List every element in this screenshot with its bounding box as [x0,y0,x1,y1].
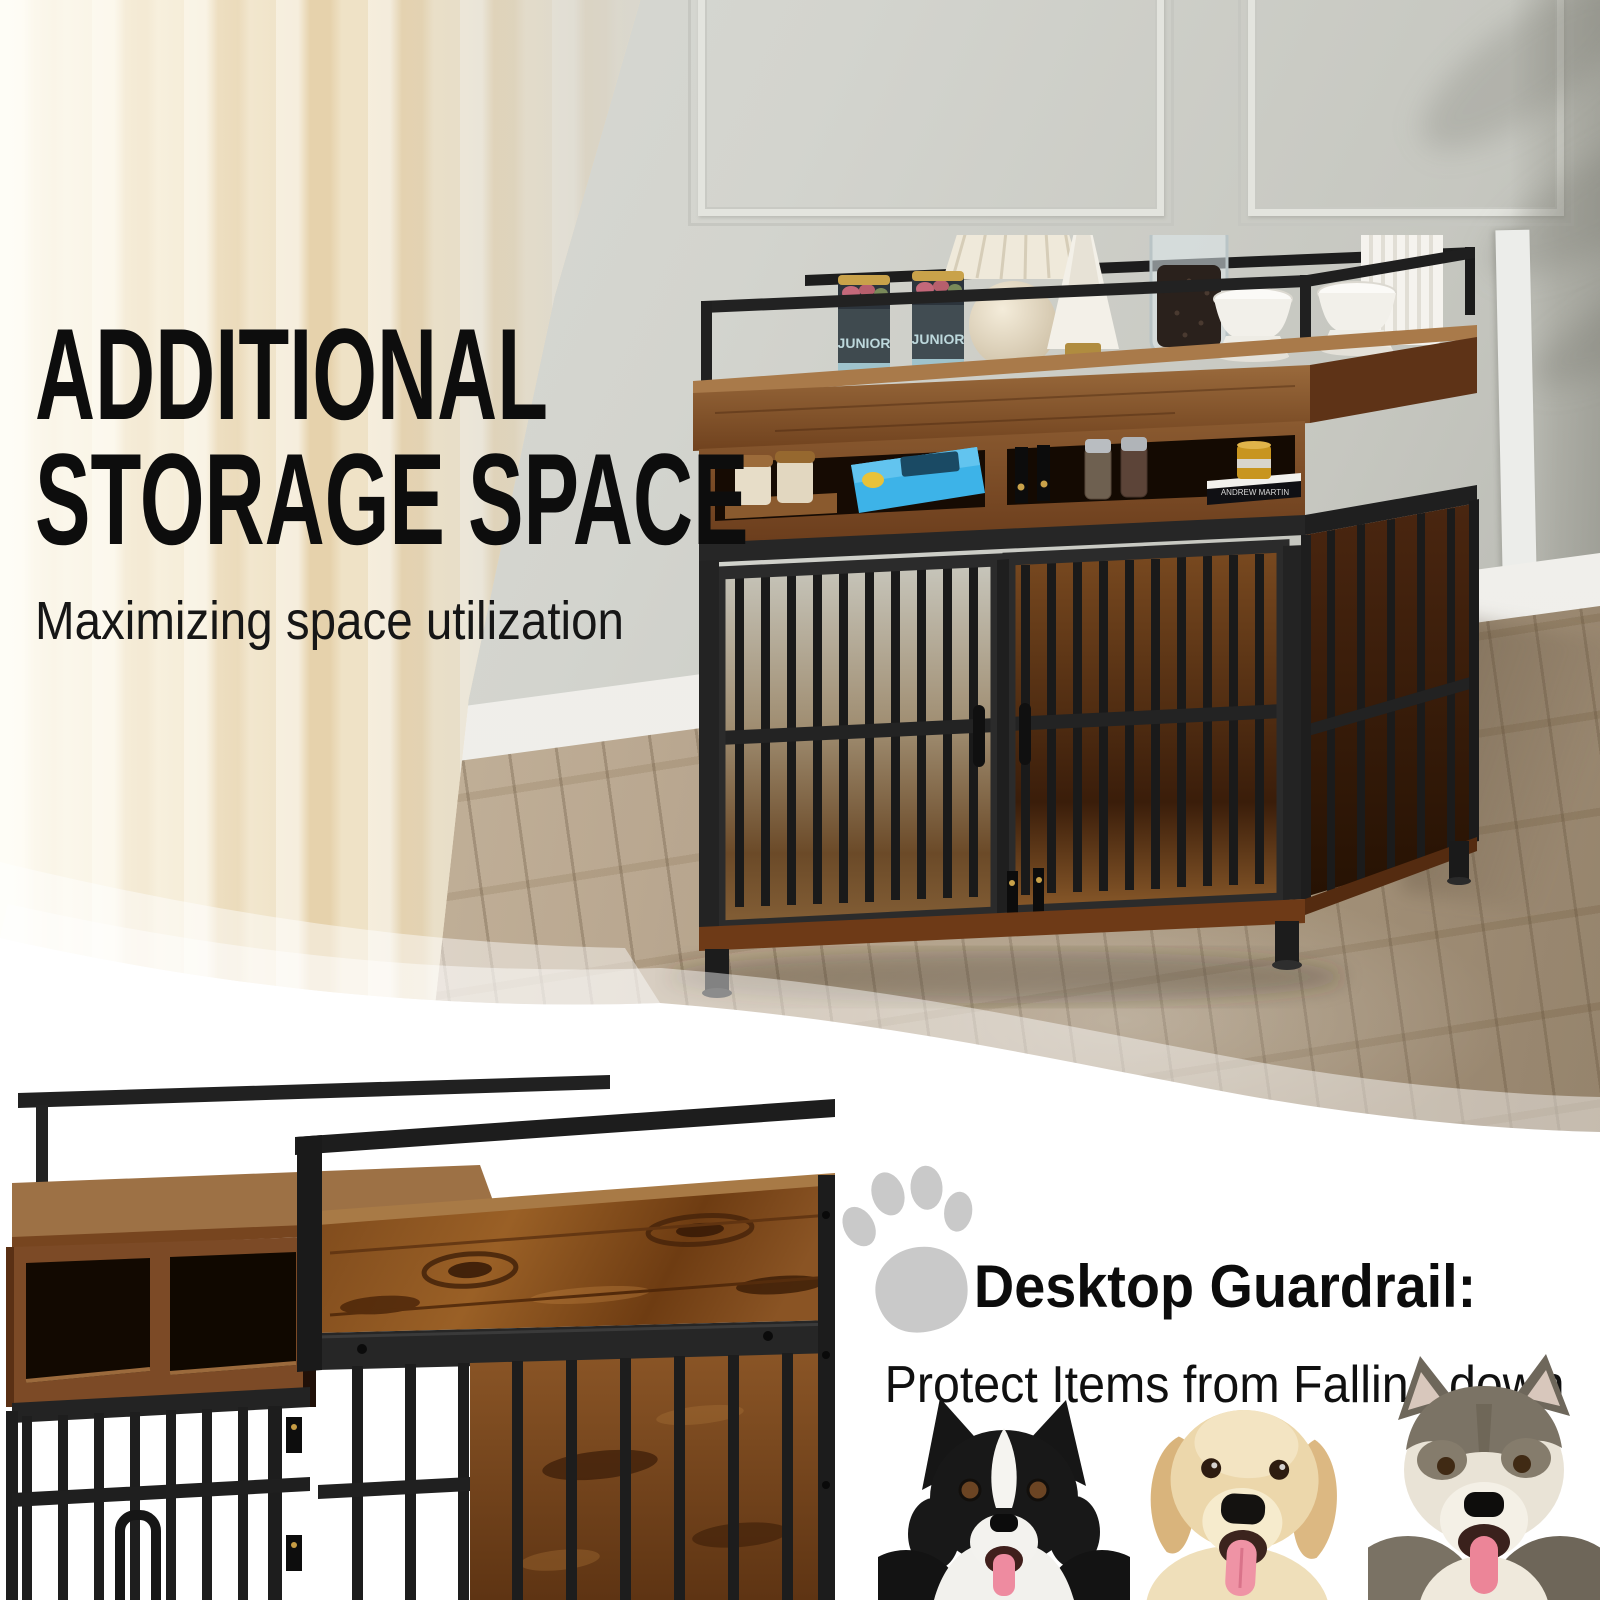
hinge [286,1417,302,1571]
crate-closeup-photo [0,1015,835,1600]
crate-leg [705,949,729,991]
alaskan-malamute-photo [1368,1348,1600,1600]
storage-jar [1151,235,1227,353]
candle-jar [1237,441,1271,479]
crate-leg [1275,921,1299,963]
crate-shadow [665,951,1345,1003]
headline-subtitle: Maximizing space utilization [35,590,1150,652]
headline: ADDITIONAL STORAGE SPACE Maximizing spac… [35,312,1150,652]
wall-panel [688,0,1174,226]
golden-retriever-photo [1118,1382,1370,1600]
product-infographic: JUNIOR JUNIOR [0,0,1600,1600]
crate-side [1301,499,1479,899]
book-title: ANDREW MARTIN [1221,488,1290,497]
feature-title: Desktop Guardrail: [845,1252,1600,1321]
frame-post [297,1135,322,1372]
headline-title: ADDITIONAL STORAGE SPACE [35,312,1150,562]
border-collie-photo [878,1392,1130,1600]
frame-rail [318,1477,470,1499]
door-handle [1019,703,1031,765]
frame-post [818,1175,835,1600]
crate-leg [1449,841,1469,879]
crate-bars [6,1387,310,1600]
door-handle [973,705,985,767]
room-scene-photo: JUNIOR JUNIOR [0,0,1600,1170]
